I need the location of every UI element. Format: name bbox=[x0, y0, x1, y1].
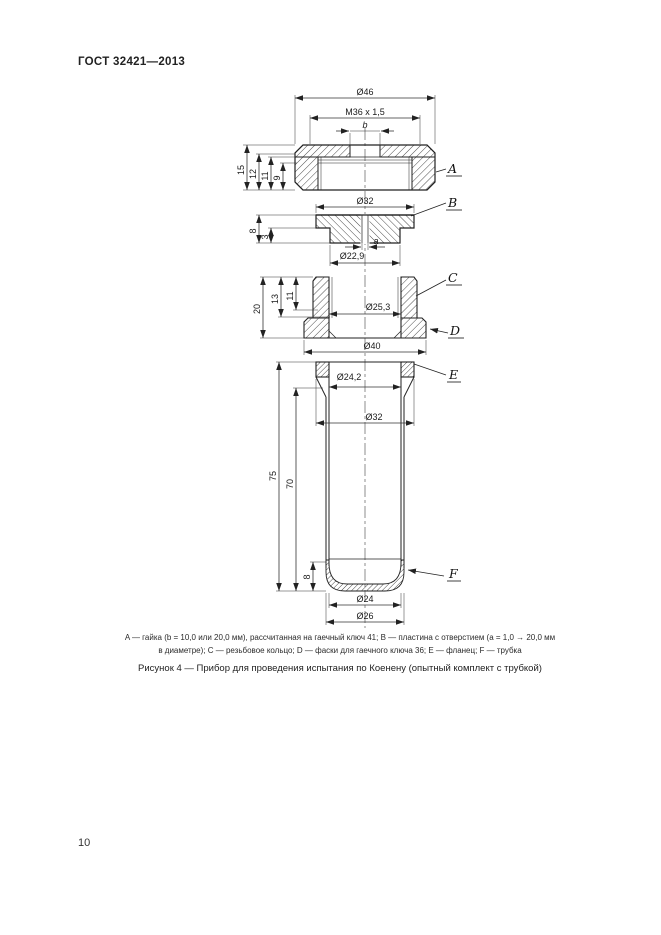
part-label-e: E bbox=[448, 367, 458, 382]
dim-13: 13 bbox=[270, 294, 280, 304]
figure-caption-line2: в диаметре); C — резьбовое кольцо; D — ф… bbox=[85, 644, 595, 657]
figure-title: Рисунок 4 — Прибор для проведения испыта… bbox=[85, 663, 595, 674]
dim-11c: 11 bbox=[285, 291, 295, 300]
dim-b: b bbox=[362, 120, 367, 130]
dim-d32-plate: Ø32 bbox=[356, 196, 373, 206]
part-label-b: B bbox=[447, 195, 457, 210]
dim-8: 8 bbox=[248, 228, 258, 233]
dim-d32-flange: Ø32 bbox=[365, 412, 382, 422]
dim-11: 11 bbox=[260, 171, 270, 180]
dim-d26: Ø26 bbox=[356, 611, 373, 621]
dim-a: a bbox=[373, 236, 378, 246]
dim-d22-9: Ø22,9 bbox=[340, 251, 365, 261]
leader-b bbox=[411, 203, 446, 216]
leader-f bbox=[408, 570, 444, 576]
dim-12: 12 bbox=[248, 169, 258, 179]
dim-d24: Ø24 bbox=[356, 594, 373, 604]
part-label-c: C bbox=[448, 270, 458, 285]
dim-d46: Ø46 bbox=[356, 87, 373, 97]
dim-20: 20 bbox=[252, 304, 262, 314]
leader-d bbox=[430, 329, 448, 333]
dim-8f: 8 bbox=[302, 574, 312, 579]
dim-d24-2: Ø24,2 bbox=[337, 372, 362, 382]
figure-caption: A — гайка (b = 10,0 или 20,0 мм), рассчи… bbox=[85, 631, 595, 657]
dim-75: 75 bbox=[268, 471, 278, 481]
figure-drawing: Ø46 M36 x 1,5 b 15 12 11 9 A bbox=[0, 0, 661, 935]
leader-e bbox=[414, 364, 446, 375]
dim-9: 9 bbox=[272, 175, 282, 180]
dim-d40: Ø40 bbox=[363, 341, 380, 351]
page-number: 10 bbox=[78, 837, 90, 849]
dim-m36: M36 x 1,5 bbox=[345, 107, 385, 117]
dim-d25-3: Ø25,3 bbox=[366, 302, 391, 312]
part-label-d: D bbox=[449, 323, 460, 338]
part-label-f: F bbox=[448, 566, 459, 581]
dim-70: 70 bbox=[285, 479, 295, 489]
part-b-plate bbox=[316, 214, 414, 244]
dims-nut-left bbox=[243, 145, 297, 190]
leader-a bbox=[436, 169, 446, 172]
leader-c bbox=[416, 280, 446, 296]
dim-15: 15 bbox=[236, 165, 246, 175]
dim-3: 3 bbox=[260, 234, 270, 239]
figure-caption-line1: A — гайка (b = 10,0 или 20,0 мм), рассчи… bbox=[85, 631, 595, 644]
part-label-a: A bbox=[447, 161, 457, 176]
